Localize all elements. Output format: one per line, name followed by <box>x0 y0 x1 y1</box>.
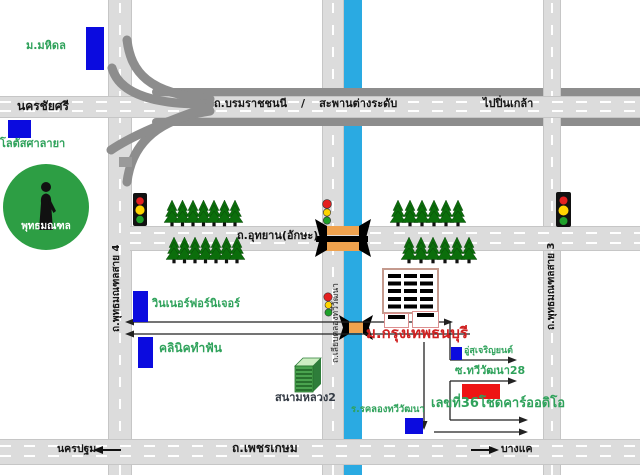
elevated-edge-bottom-right <box>561 118 640 126</box>
university-label: ม.กรุงเทพธนบุรี <box>366 325 468 342</box>
nakhon-chai-si-label: นครชัยศรี <box>17 100 69 114</box>
tree-row-right-top <box>390 200 466 226</box>
mahidol-label: ม.มหิดล <box>26 40 66 53</box>
elevated-edge-bottom-left <box>152 118 543 126</box>
dental-clinic-building <box>138 337 153 368</box>
elevated-edge-top-right <box>561 88 640 96</box>
sanam-luang-2-building <box>295 358 321 392</box>
utthayan-label: ถ.อุทยาน(อักษะ) <box>237 230 318 243</box>
winner-furniture-label: วินเนอร์ฟอร์นิเจอร์ <box>152 298 240 311</box>
route-map: ม.มหิดล โลตัสศาลายา นครชัยศรี ถ.บรมราชชน… <box>0 0 640 475</box>
borommaratchachonnani-label-group: ถ.บรมราชชนนี / สะพานต่างระดับ <box>214 98 397 111</box>
phutthamonthon-park-label: พุทธมณฑล <box>6 221 86 233</box>
phet-kasem-label: ถ.เพชรเกษม <box>232 442 298 456</box>
university-windows-col2 <box>404 274 417 310</box>
school-building <box>405 418 423 434</box>
university-building <box>382 268 439 314</box>
flyover-label: สะพานต่างระดับ <box>319 98 397 111</box>
tree-row-left-top <box>164 200 243 226</box>
university-windows-col1 <box>388 274 401 310</box>
lotus-building <box>8 120 31 138</box>
sanam-luang-2-label: สนามหลวง2 <box>275 392 336 405</box>
lotus-salaya-label: โลตัสศาลายา <box>0 138 65 151</box>
road-label-separator: / <box>301 98 305 111</box>
traffic-light-icon-sai4 <box>133 193 147 226</box>
university-windows-col3 <box>420 274 433 310</box>
soi-28-label: ซ.ทวีวัฒนา28 <box>455 365 525 378</box>
garage-label: อู่สุเจริญยนต์ <box>464 346 513 356</box>
dental-clinic-label: คลินิคทำฟัน <box>159 342 222 356</box>
borommaratchachonnani-label: ถ.บรมราชชนนี <box>214 98 287 111</box>
to-nakhon-pathom-label: นครปฐม <box>57 443 96 455</box>
road-phutthamonthon-sai4 <box>108 0 132 475</box>
elevated-edge-top-left <box>152 88 543 96</box>
winner-furniture-building <box>133 291 148 322</box>
car-audio-label: เลขที่36โชดคาร์ออดิโอ <box>431 397 565 412</box>
liap-khlong-label: ถ.เลียบคลองทวีวัฒนา <box>332 283 342 363</box>
to-bang-khae-label: บางแค <box>501 443 532 455</box>
to-pin-klao-label: ไปปิ่นเกล้า <box>483 98 533 111</box>
sai3-label: ถ.พุทธมณฑลสาย 3 <box>546 243 558 330</box>
mahidol-building <box>86 27 104 70</box>
road-utthayan <box>130 226 640 251</box>
garage-building <box>451 347 462 360</box>
school-label: ร.รคลองทวีวัฒนา <box>351 405 425 416</box>
sai4-label: ถ.พุทธมณฑลสาย 4 <box>111 245 123 332</box>
buddha-statue-icon <box>3 164 89 250</box>
